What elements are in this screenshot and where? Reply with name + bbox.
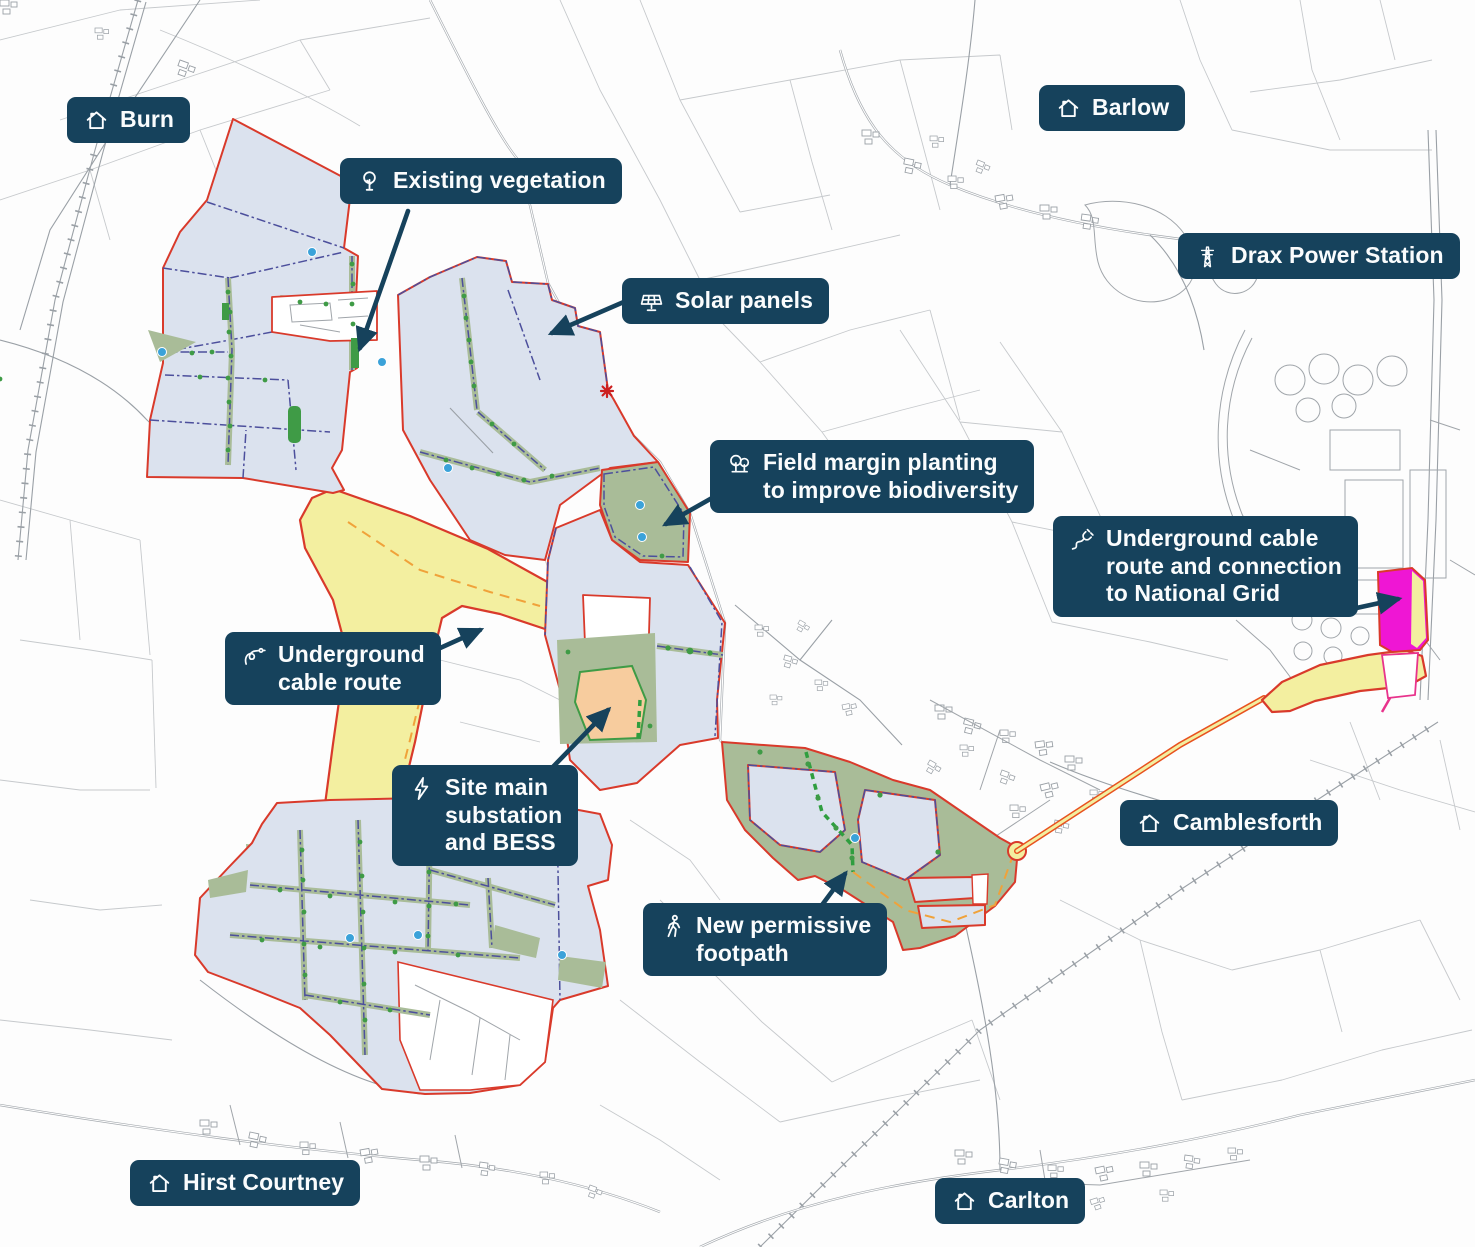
map-label-cable-route: Underground cable route [225, 632, 441, 705]
label-text: Existing vegetation [393, 167, 606, 195]
map-label-field-margin: Field margin planting to improve biodive… [710, 440, 1034, 513]
house-icon [146, 1170, 173, 1197]
solar-panel-icon [638, 288, 665, 315]
label-text: Field margin planting to improve biodive… [763, 449, 1018, 504]
map-label-camblesforth: Camblesforth [1120, 800, 1338, 846]
lightning-bolt-icon [408, 775, 435, 802]
label-text: Solar panels [675, 287, 813, 315]
tree-icon [356, 168, 383, 195]
label-text: Site main substation and BESS [445, 774, 562, 857]
label-text: New permissive footpath [696, 912, 871, 967]
map-label-carlton: Carlton [935, 1178, 1085, 1224]
map-label-solar-panels: Solar panels [622, 278, 829, 324]
map-label-burn: Burn [67, 97, 190, 143]
label-text: Underground cable route and connection t… [1106, 525, 1342, 608]
label-text: Drax Power Station [1231, 242, 1444, 270]
label-text: Carlton [988, 1187, 1069, 1215]
trees-icon [726, 450, 753, 477]
house-icon [1136, 810, 1163, 837]
label-text: Burn [120, 106, 174, 134]
pylon-icon [1194, 243, 1221, 270]
map-label-footpath: New permissive footpath [643, 903, 887, 976]
house-icon [83, 107, 110, 134]
label-text: Camblesforth [1173, 809, 1322, 837]
site-plan-map: Burn Existing vegetation Solar panels Ba… [0, 0, 1475, 1247]
house-icon [951, 1188, 978, 1215]
map-label-drax-power-station: Drax Power Station [1178, 233, 1460, 279]
house-icon [1055, 95, 1082, 122]
map-label-grid-connection: Underground cable route and connection t… [1053, 516, 1358, 617]
walking-person-icon [659, 913, 686, 940]
map-canvas [0, 0, 1475, 1247]
map-label-substation: Site main substation and BESS [392, 765, 578, 866]
label-text: Barlow [1092, 94, 1169, 122]
map-label-hirst-courtney: Hirst Courtney [130, 1160, 360, 1206]
plug-icon [1069, 526, 1096, 553]
label-text: Underground cable route [278, 641, 425, 696]
cable-icon [241, 642, 268, 669]
map-label-existing-vegetation: Existing vegetation [340, 158, 622, 204]
map-label-barlow: Barlow [1039, 85, 1185, 131]
label-text: Hirst Courtney [183, 1169, 344, 1197]
